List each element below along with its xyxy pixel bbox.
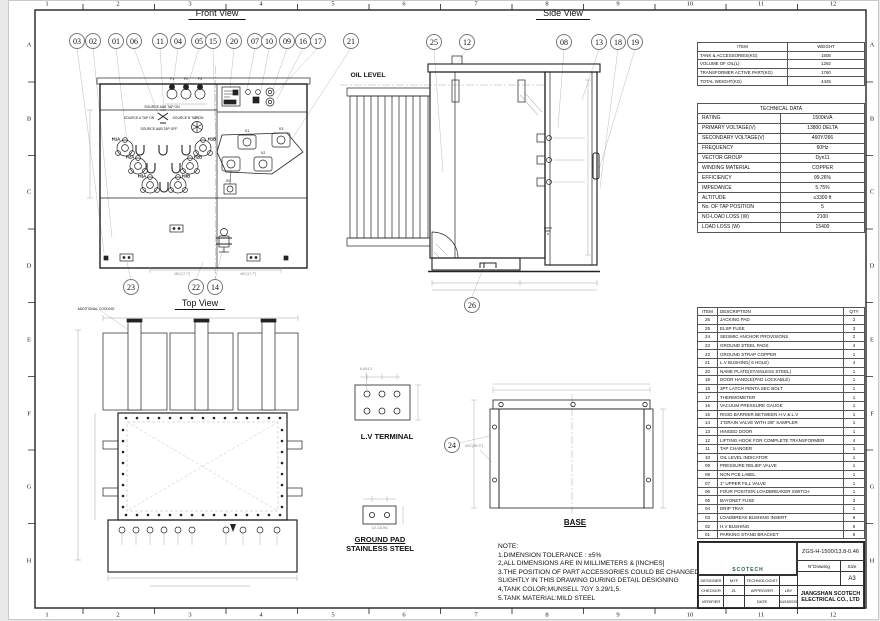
table-cell: 4 — [844, 436, 865, 445]
oil-level-label: OIL LEVEL — [351, 72, 386, 79]
note-line: SLIGHTLY IN THIS DRAWING DURING DETAIL D… — [498, 577, 713, 586]
table-cell: 20 — [698, 367, 718, 376]
table-cell: 22 — [698, 350, 718, 359]
logo-text: SCOTECH — [732, 567, 763, 573]
size-value-cell: A3 — [840, 571, 864, 586]
table-row: TOTAL WEIGHT(KG) 4425 — [698, 77, 865, 86]
table-row: 05 BAYONET FUSE 3 — [698, 496, 865, 505]
callout-11: 11 — [152, 33, 168, 49]
table-cell: RATING — [698, 114, 781, 124]
note-line: 2,ALL DIMENSIONS ARE IN MILLIMETERS & [I… — [498, 560, 713, 569]
col-ref: 4 — [259, 612, 262, 619]
callout-14: 14 — [207, 279, 223, 295]
row-ref: F — [27, 411, 31, 418]
table-row: VECTOR GROUP Dyn11 — [698, 153, 865, 163]
table-row: 12 LIFTING HOOK FOR COMPLETE TRANSFORMER… — [698, 436, 865, 445]
x0-label: X0 — [226, 179, 231, 183]
drawing-sheet: 1 2 3 4 5 6 7 8 9 10 11 12 1 2 3 4 5 6 7… — [0, 0, 880, 621]
table-cell: 1" UPPER FILL VALVE — [718, 479, 844, 488]
table-cell: 13800 DELTA — [781, 123, 865, 133]
verifier-label-cell: VERIFIER — [698, 595, 724, 608]
callout-26: 26 — [464, 297, 480, 313]
table-row: 23 GROUND STEEL PADS 4 — [698, 341, 865, 350]
table-cell: 1 — [844, 384, 865, 393]
h1a-label: H1A — [112, 137, 120, 142]
col-ref: 10 — [687, 1, 694, 8]
front-dim-left: 450 [17.7"] — [174, 272, 190, 276]
table-cell: 19 — [698, 376, 718, 385]
table-cell: 25 — [698, 324, 718, 333]
note-line: 4,TANK COLOR;MUNSELL 7GY 3.29/1,5. — [498, 586, 713, 595]
callout-04: 04 — [170, 33, 186, 49]
source-a-label: SOURCE A TAP ON — [124, 116, 155, 120]
table-cell: 3 — [844, 496, 865, 505]
note-line: 5.TANK MATERIAL:MILD STEEL — [498, 595, 713, 604]
table-cell: 4425 — [788, 77, 865, 86]
table-row: ALTITUDE ≤3300 ft — [698, 193, 865, 203]
callout-23: 23 — [123, 279, 139, 295]
table-cell: NON PCB LABEL — [718, 470, 844, 479]
table-cell: 02 — [698, 522, 718, 531]
table-cell: 09 — [698, 462, 718, 471]
table-row: 15 RIGID BARRIER BETWEEN H.V & L.V 1 — [698, 410, 865, 419]
table-cell: TAP CHANGER — [718, 444, 844, 453]
table-cell: 1292 — [788, 60, 865, 69]
table-cell: 1760 — [788, 68, 865, 77]
table-cell: 11 — [698, 444, 718, 453]
h1b-label: H1B — [208, 137, 216, 142]
callout-17: 17 — [310, 33, 326, 49]
table-cell: VOLUME OF OIL(L) — [698, 60, 788, 69]
row-ref: H — [27, 558, 32, 565]
table-cell: 1 — [844, 350, 865, 359]
ground-pad-label: GROUND PAD — [355, 535, 406, 544]
row-ref: G — [27, 484, 32, 491]
ground-pad-detail — [363, 496, 403, 524]
table-cell: PRIMARY VOLTAGE(V) — [698, 123, 781, 133]
side-view-title: Side View — [536, 8, 590, 20]
table-header-row: ITEM DESCRIPTION QTY — [698, 308, 865, 316]
col-ref: 12 — [830, 1, 837, 8]
table-cell: 1 — [844, 427, 865, 436]
base-dim: Ø22 [Ø0.9"] — [465, 444, 483, 448]
table-row: NO-LOAD LOSS (W) 2100 — [698, 212, 865, 222]
fuse-label-f2: F2 — [184, 77, 188, 81]
x2-label: X2 — [261, 151, 266, 155]
table-cell: ELSP FUSE — [718, 324, 844, 333]
table-cell: SEISMIC ANCHOR PROVISIONS — [718, 333, 844, 342]
table-row: FREQUENCY 60Hz — [698, 143, 865, 153]
table-cell: 1500kVA — [781, 114, 865, 124]
table-cell: 4 — [844, 341, 865, 350]
table-cell: 6 — [844, 530, 865, 539]
table-cell: VACUUM PRESSURE GAUGE — [718, 401, 844, 410]
ndrawing-value-cell — [797, 571, 841, 586]
table-row: 19 DOOR HANDLE(PAD LOCKABLE) 1 — [698, 376, 865, 385]
table-cell: 1505 — [788, 51, 865, 60]
callout-16: 16 — [295, 33, 311, 49]
note-line: 1.DIMENSION TOLERANCE : ±5% — [498, 552, 713, 561]
col-ref: 3 — [188, 1, 191, 8]
table-row: LOAD LOSS (W) 15400 — [698, 222, 865, 232]
table-row: EFFICIENCY 99.26% — [698, 173, 865, 183]
x3-label: X3 — [279, 127, 284, 131]
table-cell: 1 — [844, 401, 865, 410]
table-cell: 1 — [844, 367, 865, 376]
table-cell: NO-LOAD LOSS (W) — [698, 212, 781, 222]
col-ref: 1 — [45, 1, 48, 8]
row-ref: E — [870, 337, 874, 344]
table-cell: 1 — [844, 479, 865, 488]
table-cell: 18 — [698, 384, 718, 393]
table-row: 04 DRIP TRAY 1 — [698, 505, 865, 514]
table-cell: DRIP TRAY — [718, 505, 844, 514]
col-ref: 7 — [474, 612, 477, 619]
table-cell: 15400 — [781, 222, 865, 232]
table-row: WINDING MATERIAL COPPER — [698, 163, 865, 173]
col-ref: 11 — [758, 1, 764, 8]
col-ref: 10 — [687, 612, 694, 619]
fuse-label-f1: F1 — [170, 77, 174, 81]
table-row: TANK & ACCESSORIES(KG) 1505 — [698, 51, 865, 60]
table-cell: 24 — [698, 333, 718, 342]
table-row: 21 L.V BUSHING( 6 HOLE) 4 — [698, 358, 865, 367]
table-cell: 1 — [844, 376, 865, 385]
row-ref: G — [870, 484, 875, 491]
company-cell: JIANGSHAN SCOTECH ELECTRICAL CO., LTD — [797, 585, 864, 608]
table-cell: FOUR POSITION LOADBREAKER SWITCH — [718, 487, 844, 496]
lv-terminal-label: L.V TERMINAL — [361, 432, 414, 441]
col-ref: 2 — [116, 612, 119, 619]
front-view-title: Front View — [189, 8, 246, 20]
table-row: 16 VACUUM PRESSURE GAUGE 1 — [698, 401, 865, 410]
table-cell: 1 — [844, 505, 865, 514]
table-header-cell: DESCRIPTION — [718, 308, 844, 316]
table-row: 11 TAP CHANGER 1 — [698, 444, 865, 453]
col-ref: 9 — [616, 612, 619, 619]
front-view-linework — [87, 66, 310, 294]
row-ref: D — [27, 263, 32, 270]
notes-title: NOTE: — [498, 543, 713, 552]
table-cell: 1 — [844, 393, 865, 402]
table-cell: EFFICIENCY — [698, 173, 781, 183]
table-row: 08 NON PCB LABEL 1 — [698, 470, 865, 479]
table-cell: COPPER — [781, 163, 865, 173]
row-ref: C — [870, 189, 874, 196]
table-header-cell: QTY — [844, 308, 865, 316]
row-ref: H — [870, 558, 875, 565]
table-cell: 01 — [698, 530, 718, 539]
note-line: 3.THE POSITION OF PART ACCESSORIES COULD… — [498, 569, 713, 578]
drawing-code-cell: ZGS-H-1500/13.8-0.46 — [797, 542, 864, 561]
callout-15: 15 — [205, 33, 221, 49]
base-label: BASE — [564, 518, 586, 527]
callout-09: 09 — [279, 33, 295, 49]
table-cell: IMPEDANCE — [698, 183, 781, 193]
table-cell: PARKING STAND BRACKET — [718, 530, 844, 539]
table-cell: GROUND STEEL PADS — [718, 341, 844, 350]
table-cell: WINDING MATERIAL — [698, 163, 781, 173]
callout-10: 10 — [261, 33, 277, 49]
callout-20: 20 — [226, 33, 242, 49]
table-cell: 460Y/266 — [781, 133, 865, 143]
col-ref: 6 — [402, 612, 405, 619]
table-cell: LOADBREAK BUSHING INSERT — [718, 513, 844, 522]
table-cell: 17 — [698, 393, 718, 402]
h3a-label: H3A — [138, 174, 146, 179]
col-ref: 5 — [331, 612, 334, 619]
table-cell: 21 — [698, 358, 718, 367]
callout-08: 08 — [556, 34, 572, 50]
row-ref: E — [27, 337, 31, 344]
table-row: TRANSFORMER ACTIVE PART(KG) 1760 — [698, 68, 865, 77]
col-ref: 1 — [45, 612, 48, 619]
table-cell: 2 — [844, 333, 865, 342]
table-row: PRIMARY VOLTAGE(V) 13800 DELTA — [698, 123, 865, 133]
table-cell: Dyn11 — [781, 153, 865, 163]
table-cell: ALTITUDE — [698, 193, 781, 203]
row-ref: B — [27, 116, 31, 123]
table-row: 18 3PT LATCH PENTA SEC BOLT 1 — [698, 384, 865, 393]
table-cell: LIFTING HOOK FOR COMPLETE TRANSFORMER — [718, 436, 844, 445]
ground-pad-dim: 1/2-13UNC — [372, 526, 389, 530]
table-cell: PRESSURE RELIEF VALVE — [718, 462, 844, 471]
table-row: 10 OIL LEVEL INDICATOR 1 — [698, 453, 865, 462]
row-ref: A — [27, 42, 32, 49]
lv-terminal-detail — [355, 372, 421, 420]
table-cell: GROUND STRAP COPPER — [718, 350, 844, 359]
table-row: 14 1"DRAIN VALVE WITH 3/8" SAMPLER 1 — [698, 419, 865, 428]
table-cell: ≤3300 ft — [781, 193, 865, 203]
table-header-cell: WEIGHT — [788, 43, 865, 52]
table-cell: 1 — [844, 410, 865, 419]
table-cell: 13 — [698, 427, 718, 436]
table-header-cell: ITEM — [698, 308, 718, 316]
table-cell: 3 — [844, 324, 865, 333]
table-cell: 99.26% — [781, 173, 865, 183]
col-ref: 3 — [188, 612, 191, 619]
table-cell: No. OF TAP POSITION — [698, 203, 781, 213]
table-cell: 26 — [698, 316, 718, 325]
table-row: 01 PARKING STAND BRACKET 6 — [698, 530, 865, 539]
table-cell: NAME PLATE(STAINLESS STEEL) — [718, 367, 844, 376]
table-row: 07 1" UPPER FILL VALVE 1 — [698, 479, 865, 488]
table-cell: H.V BUSHING — [718, 522, 844, 531]
top-view-linework — [75, 315, 302, 586]
table-header-cell: ITEM — [698, 43, 788, 52]
callout-06: 06 — [126, 33, 142, 49]
table-row: 24 SEISMIC ANCHOR PROVISIONS 2 — [698, 333, 865, 342]
table-cell: 15 — [698, 410, 718, 419]
verifier-value-cell — [723, 595, 745, 608]
table-cell: 1 — [844, 419, 865, 428]
table-cell: 03 — [698, 513, 718, 522]
additional-cooling-label: ADDITIONAL COOLING — [78, 307, 115, 311]
table-cell: 1"DRAIN VALVE WITH 3/8" SAMPLER — [718, 419, 844, 428]
table-cell: OIL LEVEL INDICATOR — [718, 453, 844, 462]
table-header-row: TECHNICAL DATA — [698, 104, 865, 114]
table-cell: L.V BUSHING( 6 HOLE) — [718, 358, 844, 367]
h3b-label: H3B — [182, 174, 190, 179]
table-cell: 04 — [698, 505, 718, 514]
table-cell: TRANSFORMER ACTIVE PART(KG) — [698, 68, 788, 77]
table-title-cell: TECHNICAL DATA — [698, 104, 865, 114]
table-row: 20 NAME PLATE(STAINLESS STEEL) 1 — [698, 367, 865, 376]
table-cell: 1 — [844, 444, 865, 453]
table-row: 26 JACKING PAD 2 — [698, 316, 865, 325]
weight-table: ITEM WEIGHT TANK & ACCESSORIES(KG) 1505 … — [697, 42, 865, 86]
row-ref: A — [870, 42, 875, 49]
callout-21: 21 — [343, 33, 359, 49]
table-row: RATING 1500kVA — [698, 114, 865, 124]
col-ref: 8 — [545, 1, 548, 8]
table-row: IMPEDANCE 5.75% — [698, 183, 865, 193]
source-ab-off-label: SOURCE A&B TAP OFF — [141, 127, 178, 131]
col-ref: 11 — [758, 612, 764, 619]
table-cell: 5 — [781, 203, 865, 213]
technical-data-table: TECHNICAL DATA RATING 1500kVA PRIMARY VO… — [697, 103, 865, 233]
table-cell: 3PT LATCH PENTA SEC BOLT — [718, 384, 844, 393]
table-cell: 10 — [698, 453, 718, 462]
company-line2: ELECTRICAL CO., LTD — [801, 597, 859, 603]
col-ref: 9 — [616, 1, 619, 8]
notes-block: NOTE: 1.DIMENSION TOLERANCE : ±5% 2,ALL … — [498, 543, 713, 603]
table-row: VOLUME OF OIL(L) 1292 — [698, 60, 865, 69]
table-cell: 5.75% — [781, 183, 865, 193]
x0-top-label: X0 — [195, 116, 199, 120]
table-cell: HINGED DOOR — [718, 427, 844, 436]
lv-terminal-dim: 6-Ø14.3 — [360, 367, 372, 371]
callout-12: 12 — [459, 34, 475, 50]
table-row: 22 GROUND STRAP COPPER 1 — [698, 350, 865, 359]
table-row: SECONDARY VOLTAGE(V) 460Y/266 — [698, 133, 865, 143]
callout-18: 18 — [610, 34, 626, 50]
col-ref: 5 — [331, 1, 334, 8]
callout-19: 19 — [627, 34, 643, 50]
callout-01: 01 — [108, 33, 124, 49]
table-cell: BAYONET FUSE — [718, 496, 844, 505]
h2a-label: H2A — [126, 155, 134, 160]
table-cell: 1 — [844, 453, 865, 462]
row-ref: F — [870, 411, 874, 418]
table-cell: 16 — [698, 401, 718, 410]
table-cell: 07 — [698, 479, 718, 488]
table-header-row: ITEM WEIGHT — [698, 43, 865, 52]
col-ref: 7 — [474, 1, 477, 8]
table-cell: 05 — [698, 496, 718, 505]
table-cell: TANK & ACCESSORIES(KG) — [698, 51, 788, 60]
row-ref: D — [870, 263, 875, 270]
row-ref: C — [27, 189, 31, 196]
table-cell: 60Hz — [781, 143, 865, 153]
table-cell: 06 — [698, 487, 718, 496]
table-cell: 2 — [844, 316, 865, 325]
callout-13: 13 — [591, 34, 607, 50]
table-cell: FREQUENCY — [698, 143, 781, 153]
front-dim-right: 450 [17.7"] — [240, 272, 256, 276]
col-ref: 4 — [259, 1, 262, 8]
table-row: 06 FOUR POSITION LOADBREAKER SWITCH 1 — [698, 487, 865, 496]
date-label-cell: DATE — [744, 595, 780, 608]
base-detail-linework — [471, 384, 666, 514]
table-cell: JACKING PAD — [718, 316, 844, 325]
table-cell: 1 — [844, 462, 865, 471]
table-cell: RIGID BARRIER BETWEEN H.V & L.V — [718, 410, 844, 419]
table-cell: 12 — [698, 436, 718, 445]
table-row: 25 ELSP FUSE 3 — [698, 324, 865, 333]
table-cell: LOAD LOSS (W) — [698, 222, 781, 232]
table-row: 09 PRESSURE RELIEF VALVE 1 — [698, 462, 865, 471]
table-cell: 23 — [698, 341, 718, 350]
col-ref: 6 — [402, 1, 405, 8]
table-cell: 4 — [844, 358, 865, 367]
source-ab-on-label: SOURCE A&B TAP ON — [144, 105, 179, 109]
table-cell: 6 — [844, 513, 865, 522]
col-ref: 8 — [545, 612, 548, 619]
table-row: No. OF TAP POSITION 5 — [698, 203, 865, 213]
fuse-label-f3: F3 — [198, 77, 202, 81]
callout-22: 22 — [188, 279, 204, 295]
table-cell: 08 — [698, 470, 718, 479]
date-value-cell: 04/15/2025 — [779, 595, 798, 608]
table-cell: 6 — [844, 522, 865, 531]
ground-pad-material-label: STAINLESS STEEL — [346, 544, 414, 553]
table-cell: 14 — [698, 419, 718, 428]
callout-25: 25 — [426, 34, 442, 50]
row-ref: B — [870, 116, 874, 123]
table-cell: THERMOMETER — [718, 393, 844, 402]
table-cell: 2100 — [781, 212, 865, 222]
table-row: 03 LOADBREAK BUSHING INSERT 6 — [698, 513, 865, 522]
table-cell: VECTOR GROUP — [698, 153, 781, 163]
table-row: 13 HINGED DOOR 1 — [698, 427, 865, 436]
top-view-title: Top View — [175, 298, 225, 310]
table-row: 17 THERMOMETER 1 — [698, 393, 865, 402]
callout-02: 02 — [85, 33, 101, 49]
table-cell: TOTAL WEIGHT(KG) — [698, 77, 788, 86]
h2b-label: H2B — [194, 155, 202, 160]
table-row: 02 H.V BUSHING 6 — [698, 522, 865, 531]
table-cell: 1 — [844, 470, 865, 479]
table-cell: 1 — [844, 487, 865, 496]
table-cell: DOOR HANDLE(PAD LOCKABLE) — [718, 376, 844, 385]
table-cell: SECONDARY VOLTAGE(V) — [698, 133, 781, 143]
callout-24: 24 — [444, 437, 460, 453]
callout-03: 03 — [69, 33, 85, 49]
col-ref: 12 — [830, 612, 837, 619]
parts-list-table: ITEM DESCRIPTION QTY 26 JACKING PAD 2 25… — [697, 307, 865, 539]
col-ref: 2 — [116, 1, 119, 8]
x1-label: X1 — [245, 129, 250, 133]
